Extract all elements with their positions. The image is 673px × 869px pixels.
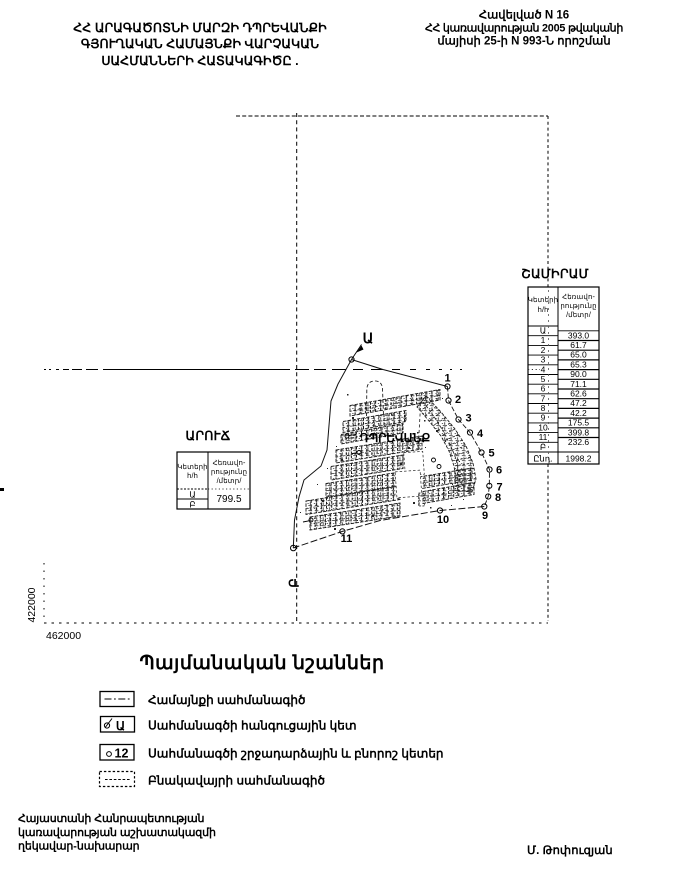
svg-text:կառավարության աշխատակազմի: կառավարության աշխատակազմի xyxy=(18,827,216,839)
svg-text:Պայմանական նշաններ: Պայմանական նշաններ xyxy=(139,653,384,674)
svg-text:Կետերի: Կետերի xyxy=(177,462,207,471)
svg-text:10: 10 xyxy=(437,514,449,526)
svg-text:5: 5 xyxy=(489,448,495,460)
svg-text:Ա: Ա xyxy=(189,490,196,500)
svg-text:ՀՀ կառավարության 2005 թվականի: ՀՀ կառավարության 2005 թվականի xyxy=(425,23,623,35)
svg-text:Ա: Ա xyxy=(116,719,125,733)
svg-text:մայիսի 25-ի N 993-Ն որոշման: մայիսի 25-ի N 993-Ն որոշման xyxy=(437,35,610,48)
svg-text:Բնակավայրի սահմանագիծ: Բնակավայրի սահմանագիծ xyxy=(148,774,325,788)
svg-text:393.0: 393.0 xyxy=(568,330,590,340)
svg-text:ԴՊՐԵՎԱՆՔ: ԴՊՐԵՎԱՆՔ xyxy=(360,431,430,445)
svg-text:ՀՀ ԱՐԱԳԱԾՈՏՆԻ ՄԱՐԶԻ ԴՊՐԵՎԱՆՔԻ: ՀՀ ԱՐԱԳԱԾՈՏՆԻ ՄԱՐԶԻ ԴՊՐԵՎԱՆՔԻ xyxy=(73,21,327,35)
svg-text:11: 11 xyxy=(539,432,548,442)
svg-text:հ/հ: հ/հ xyxy=(187,471,198,480)
svg-text:րությունը: րությունը xyxy=(560,301,596,310)
svg-text:2: 2 xyxy=(455,394,461,406)
svg-text:ՇԱՄԻՐԱՄ: ՇԱՄԻՐԱՄ xyxy=(521,267,588,281)
svg-text:9: 9 xyxy=(541,413,546,423)
svg-text:232.6: 232.6 xyxy=(568,437,590,447)
svg-text:5: 5 xyxy=(541,374,546,384)
svg-text:3: 3 xyxy=(541,355,546,365)
svg-text:Հավելված N 16: Հավելված N 16 xyxy=(479,9,569,22)
svg-text:462000: 462000 xyxy=(46,630,81,642)
svg-text:Ընդ.: Ընդ. xyxy=(533,454,553,464)
svg-text:1998.2: 1998.2 xyxy=(566,454,592,464)
svg-text:422000: 422000 xyxy=(26,587,38,622)
svg-text:175.5: 175.5 xyxy=(568,418,590,428)
svg-text:47.2: 47.2 xyxy=(570,398,587,408)
svg-text:62.6: 62.6 xyxy=(570,389,587,399)
svg-text:հ/հ: հ/հ xyxy=(537,305,548,314)
svg-text:12: 12 xyxy=(115,747,129,761)
svg-text:ՍԱՀՄԱՆՆԵՐԻ ՀԱՏԱԿԱԳԻԾԸ .: ՍԱՀՄԱՆՆԵՐԻ ՀԱՏԱԿԱԳԻԾԸ . xyxy=(101,54,298,68)
svg-text:Ա: Ա xyxy=(363,330,374,346)
svg-text:Հեռավո-: Հեռավո- xyxy=(562,292,595,301)
svg-text:65.3: 65.3 xyxy=(570,359,587,369)
svg-text:42.2: 42.2 xyxy=(570,408,587,418)
svg-text:ԱՐՈՒՃ: ԱՐՈՒՃ xyxy=(186,429,231,443)
svg-text:61.7: 61.7 xyxy=(570,340,587,350)
svg-text:ԳՅՈՒՂԱԿԱՆ ՀԱՄԱՅՆՔԻ ՎԱՐՉԱԿԱՆ: ԳՅՈՒՂԱԿԱՆ ՀԱՄԱՅՆՔԻ ՎԱՐՉԱԿԱՆ xyxy=(81,37,320,51)
svg-text:/մետր/: /մետր/ xyxy=(217,476,242,485)
svg-text:1: 1 xyxy=(541,335,546,345)
svg-text:399.8: 399.8 xyxy=(568,427,590,437)
svg-text:Հայաստանի Հանրապետության: Հայաստանի Հանրապետության xyxy=(18,813,205,825)
svg-text:2: 2 xyxy=(541,345,546,355)
svg-text:90.0: 90.0 xyxy=(570,369,587,379)
svg-text:Սահմանագծի շրջադարձային և բնոր: Սահմանագծի շրջադարձային և բնորոշ կետեր xyxy=(148,747,444,761)
svg-text:/մետր/: /մետր/ xyxy=(566,310,591,319)
svg-text:Համայնքի սահմանագիծ: Համայնքի սահմանագիծ xyxy=(148,693,305,707)
svg-text:11: 11 xyxy=(341,533,353,545)
svg-text:9: 9 xyxy=(482,510,488,522)
svg-text:4: 4 xyxy=(541,364,546,374)
svg-text:8: 8 xyxy=(495,492,501,504)
svg-text:65.0: 65.0 xyxy=(570,350,587,360)
svg-text:3: 3 xyxy=(466,413,472,425)
svg-text:ղեկավար-նախարար: ղեկավար-նախարար xyxy=(18,841,140,853)
svg-text:10: 10 xyxy=(538,422,548,432)
svg-text:Բ: Բ xyxy=(540,442,546,452)
svg-text:րությունը: րությունը xyxy=(211,467,247,476)
svg-text:Բ: Բ xyxy=(287,578,302,588)
svg-text:8: 8 xyxy=(541,403,546,413)
svg-text:4: 4 xyxy=(477,428,484,440)
svg-text:71.1: 71.1 xyxy=(570,379,587,389)
svg-text:1: 1 xyxy=(444,373,450,385)
svg-text:6: 6 xyxy=(541,384,546,394)
svg-text:Մ. Թոփուզյան: Մ. Թոփուզյան xyxy=(527,844,613,857)
svg-text:Հեռավո-: Հեռավո- xyxy=(213,458,246,467)
svg-text:Կետերի: Կետերի xyxy=(528,295,558,304)
svg-text:6: 6 xyxy=(496,465,502,477)
svg-text:799.5: 799.5 xyxy=(216,494,241,505)
svg-text:Սահմանագծի հանգուցային կետ: Սահմանագծի հանգուցային կետ xyxy=(148,719,357,734)
svg-text:Բ: Բ xyxy=(189,500,195,510)
svg-text:Ա: Ա xyxy=(540,326,547,336)
svg-text:7: 7 xyxy=(541,393,546,403)
